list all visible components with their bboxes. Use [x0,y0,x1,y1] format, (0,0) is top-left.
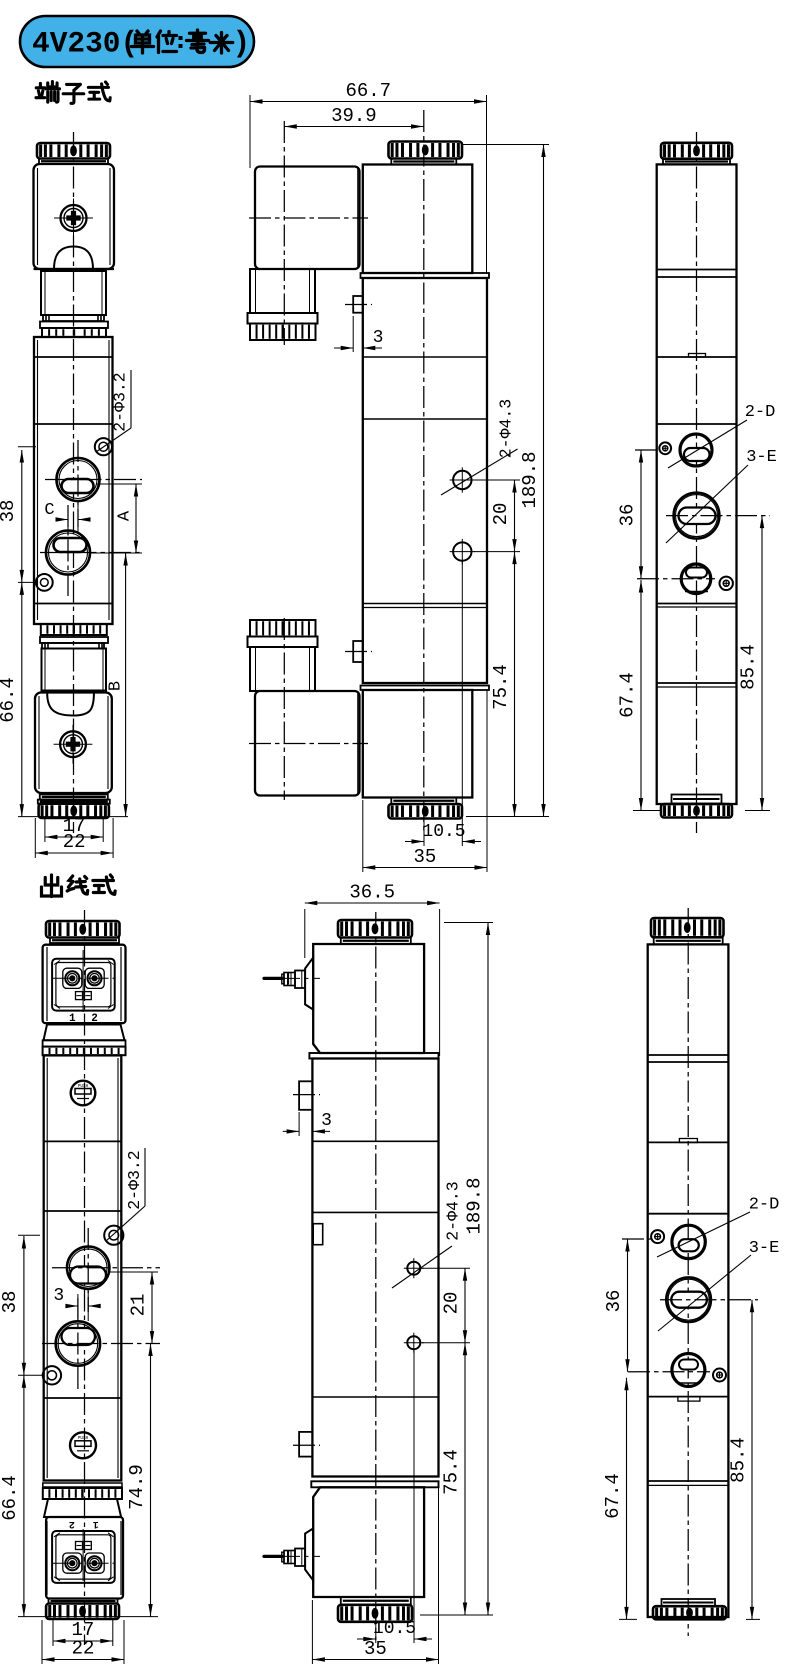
svg-text:74.9: 74.9 [126,1464,148,1510]
svg-text:189.8: 189.8 [464,1177,486,1234]
svg-text:2-Φ4.3: 2-Φ4.3 [497,399,516,458]
svg-text:67.4: 67.4 [602,1473,624,1519]
svg-text:2-Φ3.2: 2-Φ3.2 [125,1150,144,1209]
svg-text:B: B [107,681,126,691]
svg-text:3-E: 3-E [746,448,777,467]
svg-text:): ) [233,27,251,61]
svg-text:3: 3 [321,1111,332,1131]
svg-text:PUSH: PUSH [78,1436,89,1441]
svg-text:PUSH: PUSH [78,1084,89,1089]
svg-text:10.5: 10.5 [373,1619,416,1639]
svg-text:39.9: 39.9 [331,105,377,127]
svg-text:36: 36 [603,1290,625,1313]
svg-text:66.4: 66.4 [0,1475,21,1521]
svg-text:2: 2 [91,1013,98,1025]
svg-text:20: 20 [441,1292,463,1315]
svg-text:20: 20 [490,503,512,526]
svg-text:75.4: 75.4 [441,1449,463,1495]
svg-text:C: C [44,501,54,520]
svg-text:36: 36 [617,504,639,527]
svg-text:22: 22 [72,1638,95,1660]
svg-text:38: 38 [0,1291,21,1314]
svg-text:21: 21 [128,1294,150,1317]
svg-text:2-Φ4.3: 2-Φ4.3 [444,1181,463,1240]
svg-text:3: 3 [373,328,384,348]
svg-text:75.4: 75.4 [490,664,512,710]
svg-text:3-E: 3-E [749,1239,780,1258]
svg-text:38: 38 [0,500,19,523]
svg-text:22: 22 [63,831,86,853]
svg-text:4V230(: 4V230( [32,27,138,61]
svg-text:1: 1 [69,1013,76,1025]
svg-text:85.4: 85.4 [728,1437,750,1483]
svg-text:2-D: 2-D [745,403,776,422]
svg-text:66.7: 66.7 [345,80,391,102]
svg-text:3: 3 [53,1286,64,1306]
svg-text:1: 1 [93,1518,99,1529]
svg-text:36.5: 36.5 [349,882,395,904]
svg-text:66.4: 66.4 [0,677,19,723]
svg-text:10.5: 10.5 [422,822,465,842]
svg-text:2: 2 [69,1518,75,1529]
svg-text:35: 35 [413,846,436,868]
svg-text:A: A [116,510,135,521]
svg-text:2-Φ3.2: 2-Φ3.2 [111,372,130,431]
svg-text:85.4: 85.4 [738,644,760,690]
svg-text:2-D: 2-D [749,1196,780,1215]
svg-text:35: 35 [364,1638,387,1660]
svg-text:67.4: 67.4 [617,672,639,718]
svg-text:189.8: 189.8 [519,451,541,508]
